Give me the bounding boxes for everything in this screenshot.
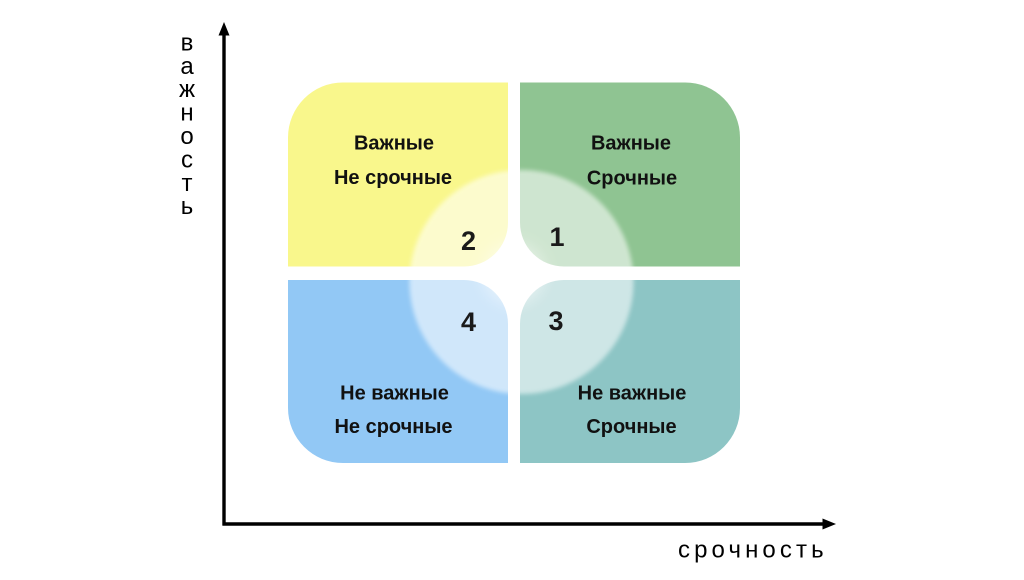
svg-text:Срочные: Срочные	[586, 416, 676, 438]
svg-text:Важные: Важные	[354, 133, 434, 155]
svg-text:Срочные: Срочные	[587, 167, 677, 189]
svg-text:Не срочные: Не срочные	[334, 416, 452, 438]
svg-text:Не важные: Не важные	[340, 383, 449, 405]
svg-text:3: 3	[548, 306, 563, 336]
svg-text:1: 1	[549, 222, 564, 252]
svg-text:Важные: Важные	[591, 133, 671, 155]
svg-text:Не срочные: Не срочные	[334, 167, 452, 189]
svg-text:ь: ь	[181, 193, 194, 220]
svg-text:4: 4	[461, 307, 476, 337]
svg-text:Не важные: Не важные	[578, 383, 687, 405]
svg-text:2: 2	[461, 226, 476, 256]
svg-text:срочность: срочность	[678, 537, 828, 564]
